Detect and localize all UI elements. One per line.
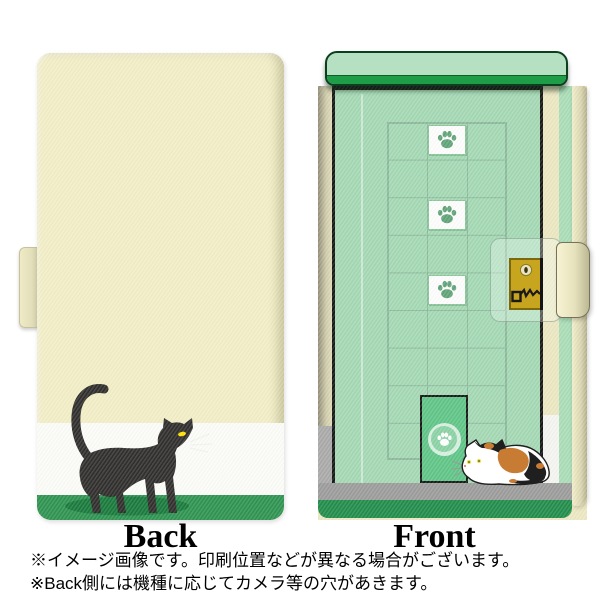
back-case bbox=[37, 53, 284, 520]
disclaimer-line-2: ※Back側には機種に応じてカメラ等の穴があきます。 bbox=[30, 572, 590, 595]
calico-nose bbox=[464, 465, 466, 467]
calico-forehead-spot bbox=[484, 443, 494, 449]
paw-window-1 bbox=[428, 125, 466, 155]
black-cat-walking-icon bbox=[60, 382, 215, 520]
disclaimer-notes: ※イメージ画像です。印刷位置などが異なる場合がございます。 ※Back側には機種… bbox=[30, 549, 590, 595]
key-scratch-icon bbox=[511, 283, 541, 305]
paw-window-3 bbox=[428, 275, 466, 305]
front-case bbox=[318, 86, 587, 520]
paw-print-icon bbox=[436, 129, 458, 151]
calico-cat-crouching-icon bbox=[452, 438, 554, 488]
base-green-strip bbox=[318, 500, 572, 518]
keyhole-icon bbox=[519, 263, 533, 277]
door-top-bar-band bbox=[327, 75, 566, 84]
paw-window-2 bbox=[428, 200, 466, 230]
paw-print-icon bbox=[436, 204, 458, 226]
gold-lock-plate bbox=[509, 258, 543, 310]
magnet-strap-tab bbox=[19, 247, 39, 328]
product-image: Back Front ※イメージ画像です。印刷位置などが異なる場合がございます。… bbox=[0, 0, 600, 600]
door-highlight bbox=[361, 94, 363, 484]
paw-print-icon bbox=[436, 279, 458, 301]
door-top-bar bbox=[325, 51, 568, 86]
calico-whiskers bbox=[452, 461, 463, 476]
disclaimer-line-1: ※イメージ画像です。印刷位置などが異なる場合がございます。 bbox=[30, 549, 590, 572]
paw-print-icon bbox=[436, 431, 453, 448]
door-outline-over-plate bbox=[540, 258, 543, 310]
calico-rump-spot bbox=[536, 463, 544, 469]
front-left-spine bbox=[318, 86, 333, 483]
calico-tail-spot bbox=[509, 479, 517, 483]
clasp-strap-end bbox=[556, 242, 590, 318]
front-left-spine-lower bbox=[318, 426, 333, 483]
cat-whiskers bbox=[190, 434, 212, 452]
cat-tail bbox=[76, 389, 104, 458]
